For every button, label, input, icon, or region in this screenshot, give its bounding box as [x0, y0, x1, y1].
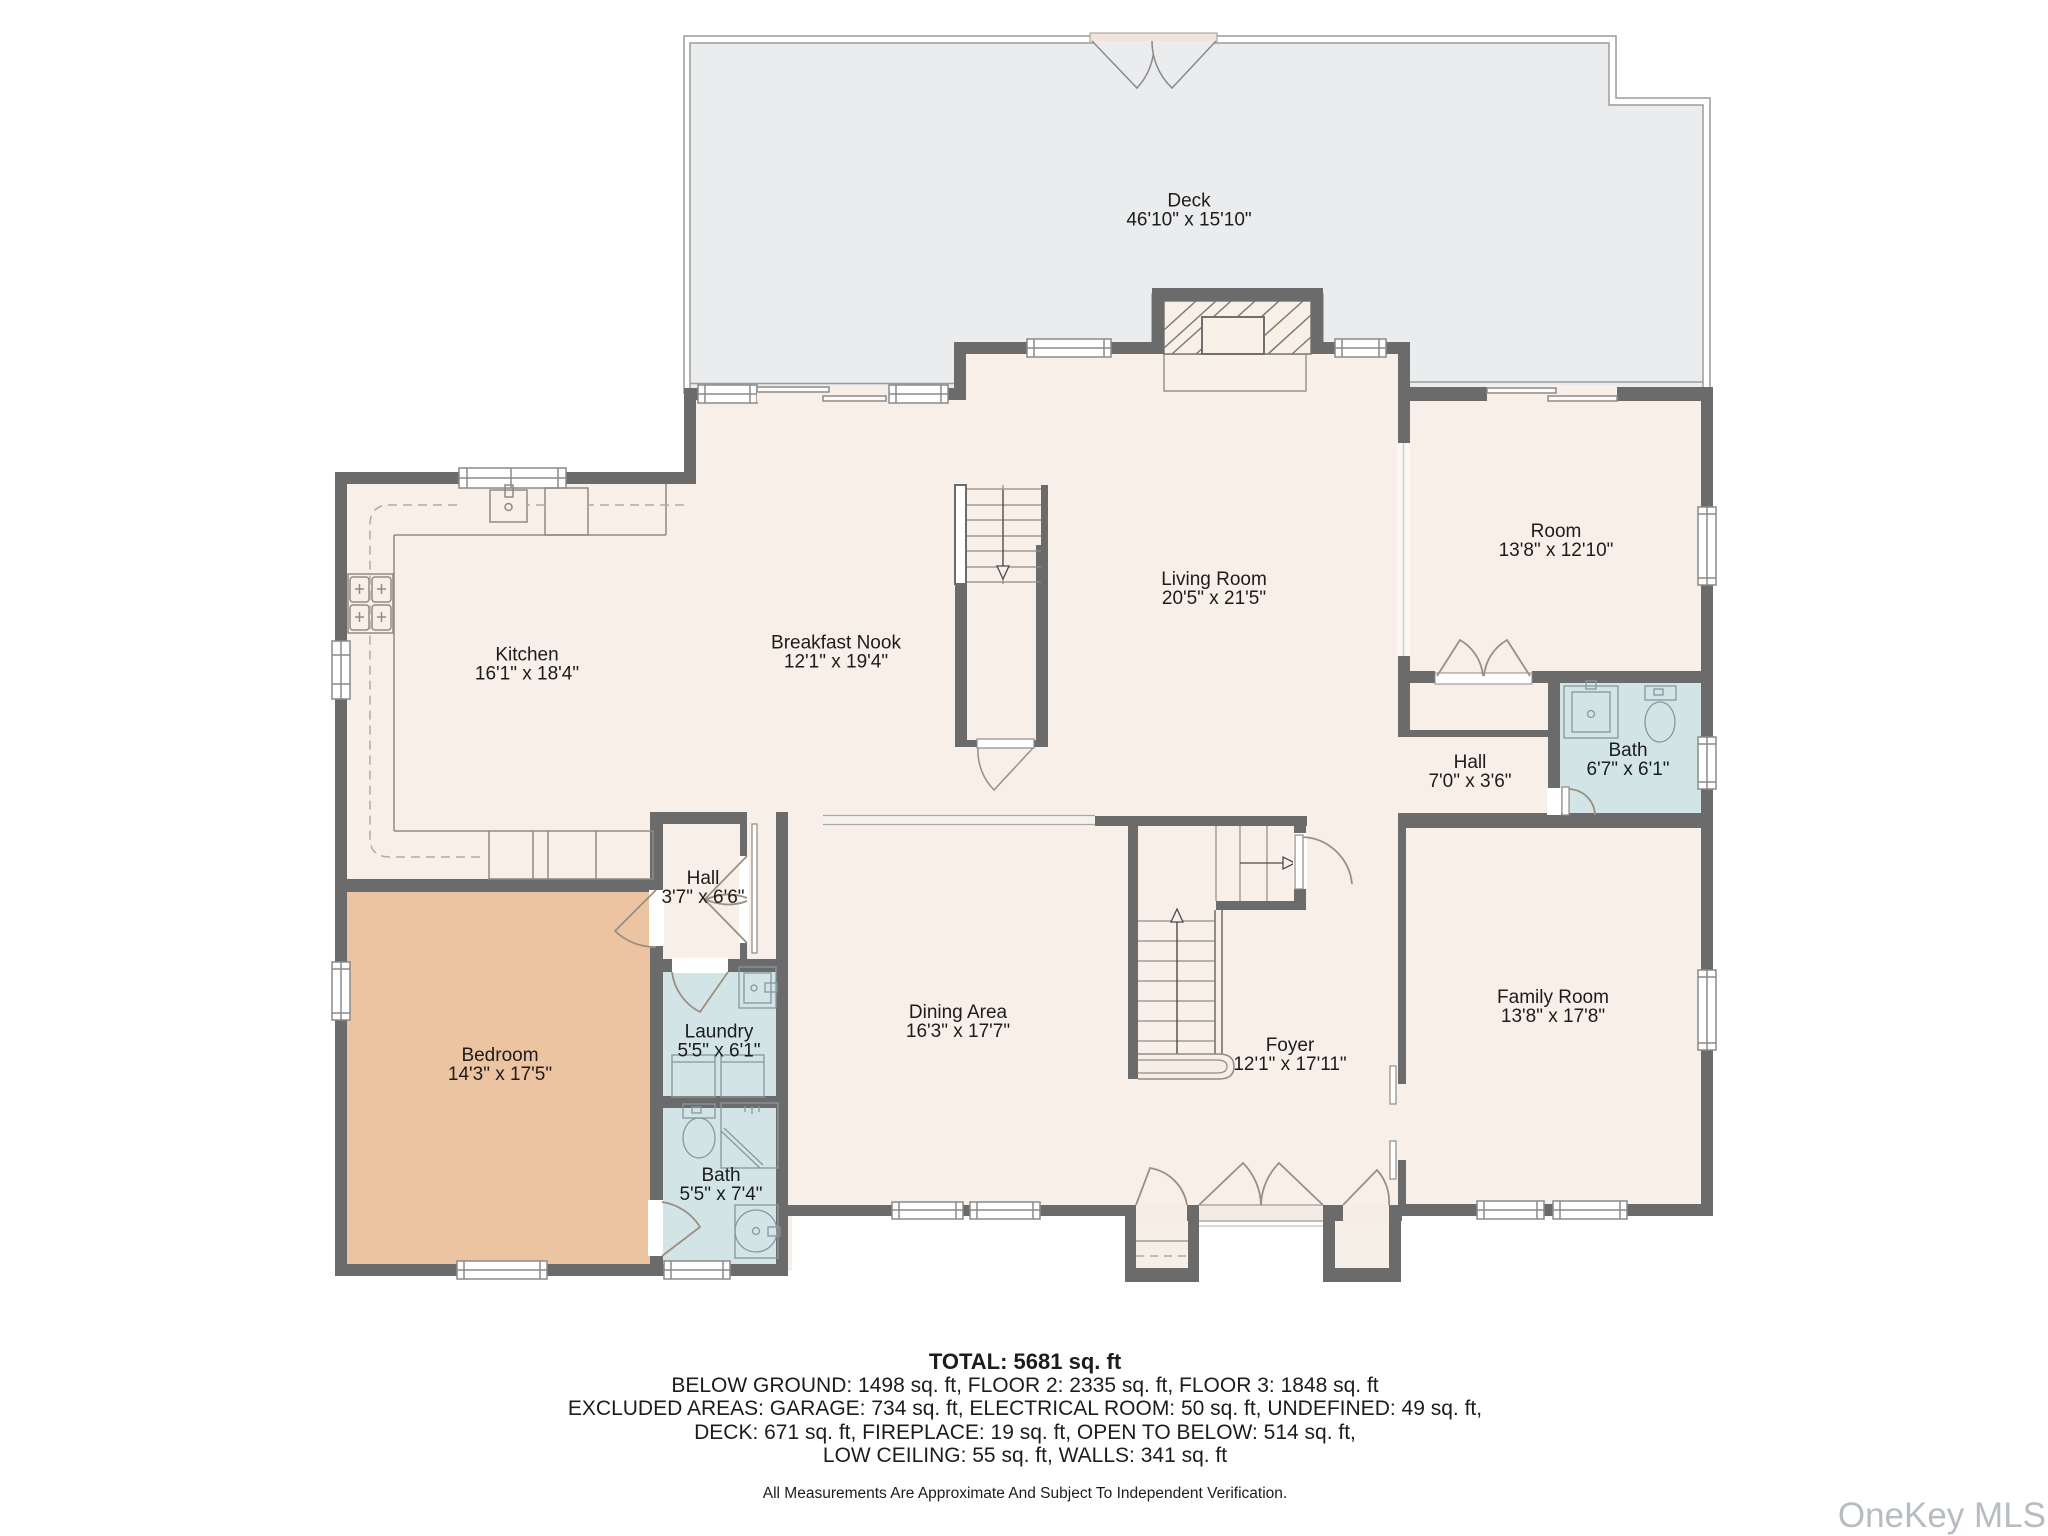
svg-text:EXCLUDED AREAS: GARAGE: 734 sq: EXCLUDED AREAS: GARAGE: 734 sq. ft, ELEC…	[568, 1397, 1482, 1420]
svg-text:Family Room: Family Room	[1497, 987, 1609, 1008]
svg-text:Hall: Hall	[687, 868, 720, 889]
svg-text:16'3" x 17'7": 16'3" x 17'7"	[906, 1021, 1010, 1042]
svg-text:13'8" x 17'8": 13'8" x 17'8"	[1501, 1006, 1605, 1027]
svg-text:Breakfast Nook: Breakfast Nook	[771, 633, 901, 654]
svg-text:6'7" x 6'1": 6'7" x 6'1"	[1586, 759, 1669, 780]
svg-text:Living Room: Living Room	[1161, 569, 1267, 590]
svg-text:Foyer: Foyer	[1266, 1035, 1315, 1056]
svg-text:Bath: Bath	[701, 1165, 740, 1186]
svg-text:Kitchen: Kitchen	[495, 645, 558, 666]
svg-text:All Measurements Are Approxima: All Measurements Are Approximate And Sub…	[763, 1485, 1287, 1502]
svg-text:16'1" x 18'4": 16'1" x 18'4"	[475, 664, 579, 685]
svg-text:TOTAL: 5681 sq. ft: TOTAL: 5681 sq. ft	[929, 1349, 1122, 1374]
svg-text:Room: Room	[1531, 521, 1582, 542]
svg-text:3'7" x 6'6": 3'7" x 6'6"	[661, 887, 744, 908]
svg-text:20'5" x 21'5": 20'5" x 21'5"	[1162, 588, 1266, 609]
svg-text:5'5" x 7'4": 5'5" x 7'4"	[679, 1184, 762, 1205]
svg-text:Laundry: Laundry	[685, 1022, 754, 1043]
svg-text:DECK: 671 sq. ft, FIREPLACE: 1: DECK: 671 sq. ft, FIREPLACE: 19 sq. ft, …	[694, 1421, 1356, 1444]
svg-text:12'1" x 19'4": 12'1" x 19'4"	[784, 652, 888, 673]
svg-text:Dining Area: Dining Area	[909, 1002, 1008, 1023]
svg-text:46'10" x 15'10": 46'10" x 15'10"	[1126, 210, 1251, 231]
svg-text:Hall: Hall	[1454, 752, 1487, 773]
svg-text:BELOW GROUND: 1498 sq. ft, FLO: BELOW GROUND: 1498 sq. ft, FLOOR 2: 2335…	[671, 1374, 1378, 1397]
svg-text:5'5" x 6'1": 5'5" x 6'1"	[677, 1041, 760, 1062]
svg-text:LOW CEILING: 55 sq. ft, WALLS:: LOW CEILING: 55 sq. ft, WALLS: 341 sq. f…	[823, 1444, 1227, 1467]
svg-text:13'8" x 12'10": 13'8" x 12'10"	[1499, 540, 1614, 561]
svg-text:Bath: Bath	[1608, 740, 1647, 761]
svg-text:OneKey MLS: OneKey MLS	[1838, 1496, 2046, 1535]
svg-text:Deck: Deck	[1167, 191, 1211, 212]
svg-text:Bedroom: Bedroom	[461, 1045, 538, 1066]
svg-text:14'3" x 17'5": 14'3" x 17'5"	[448, 1064, 552, 1085]
svg-text:7'0" x 3'6": 7'0" x 3'6"	[1428, 771, 1511, 792]
svg-text:12'1" x 17'11": 12'1" x 17'11"	[1233, 1054, 1346, 1075]
